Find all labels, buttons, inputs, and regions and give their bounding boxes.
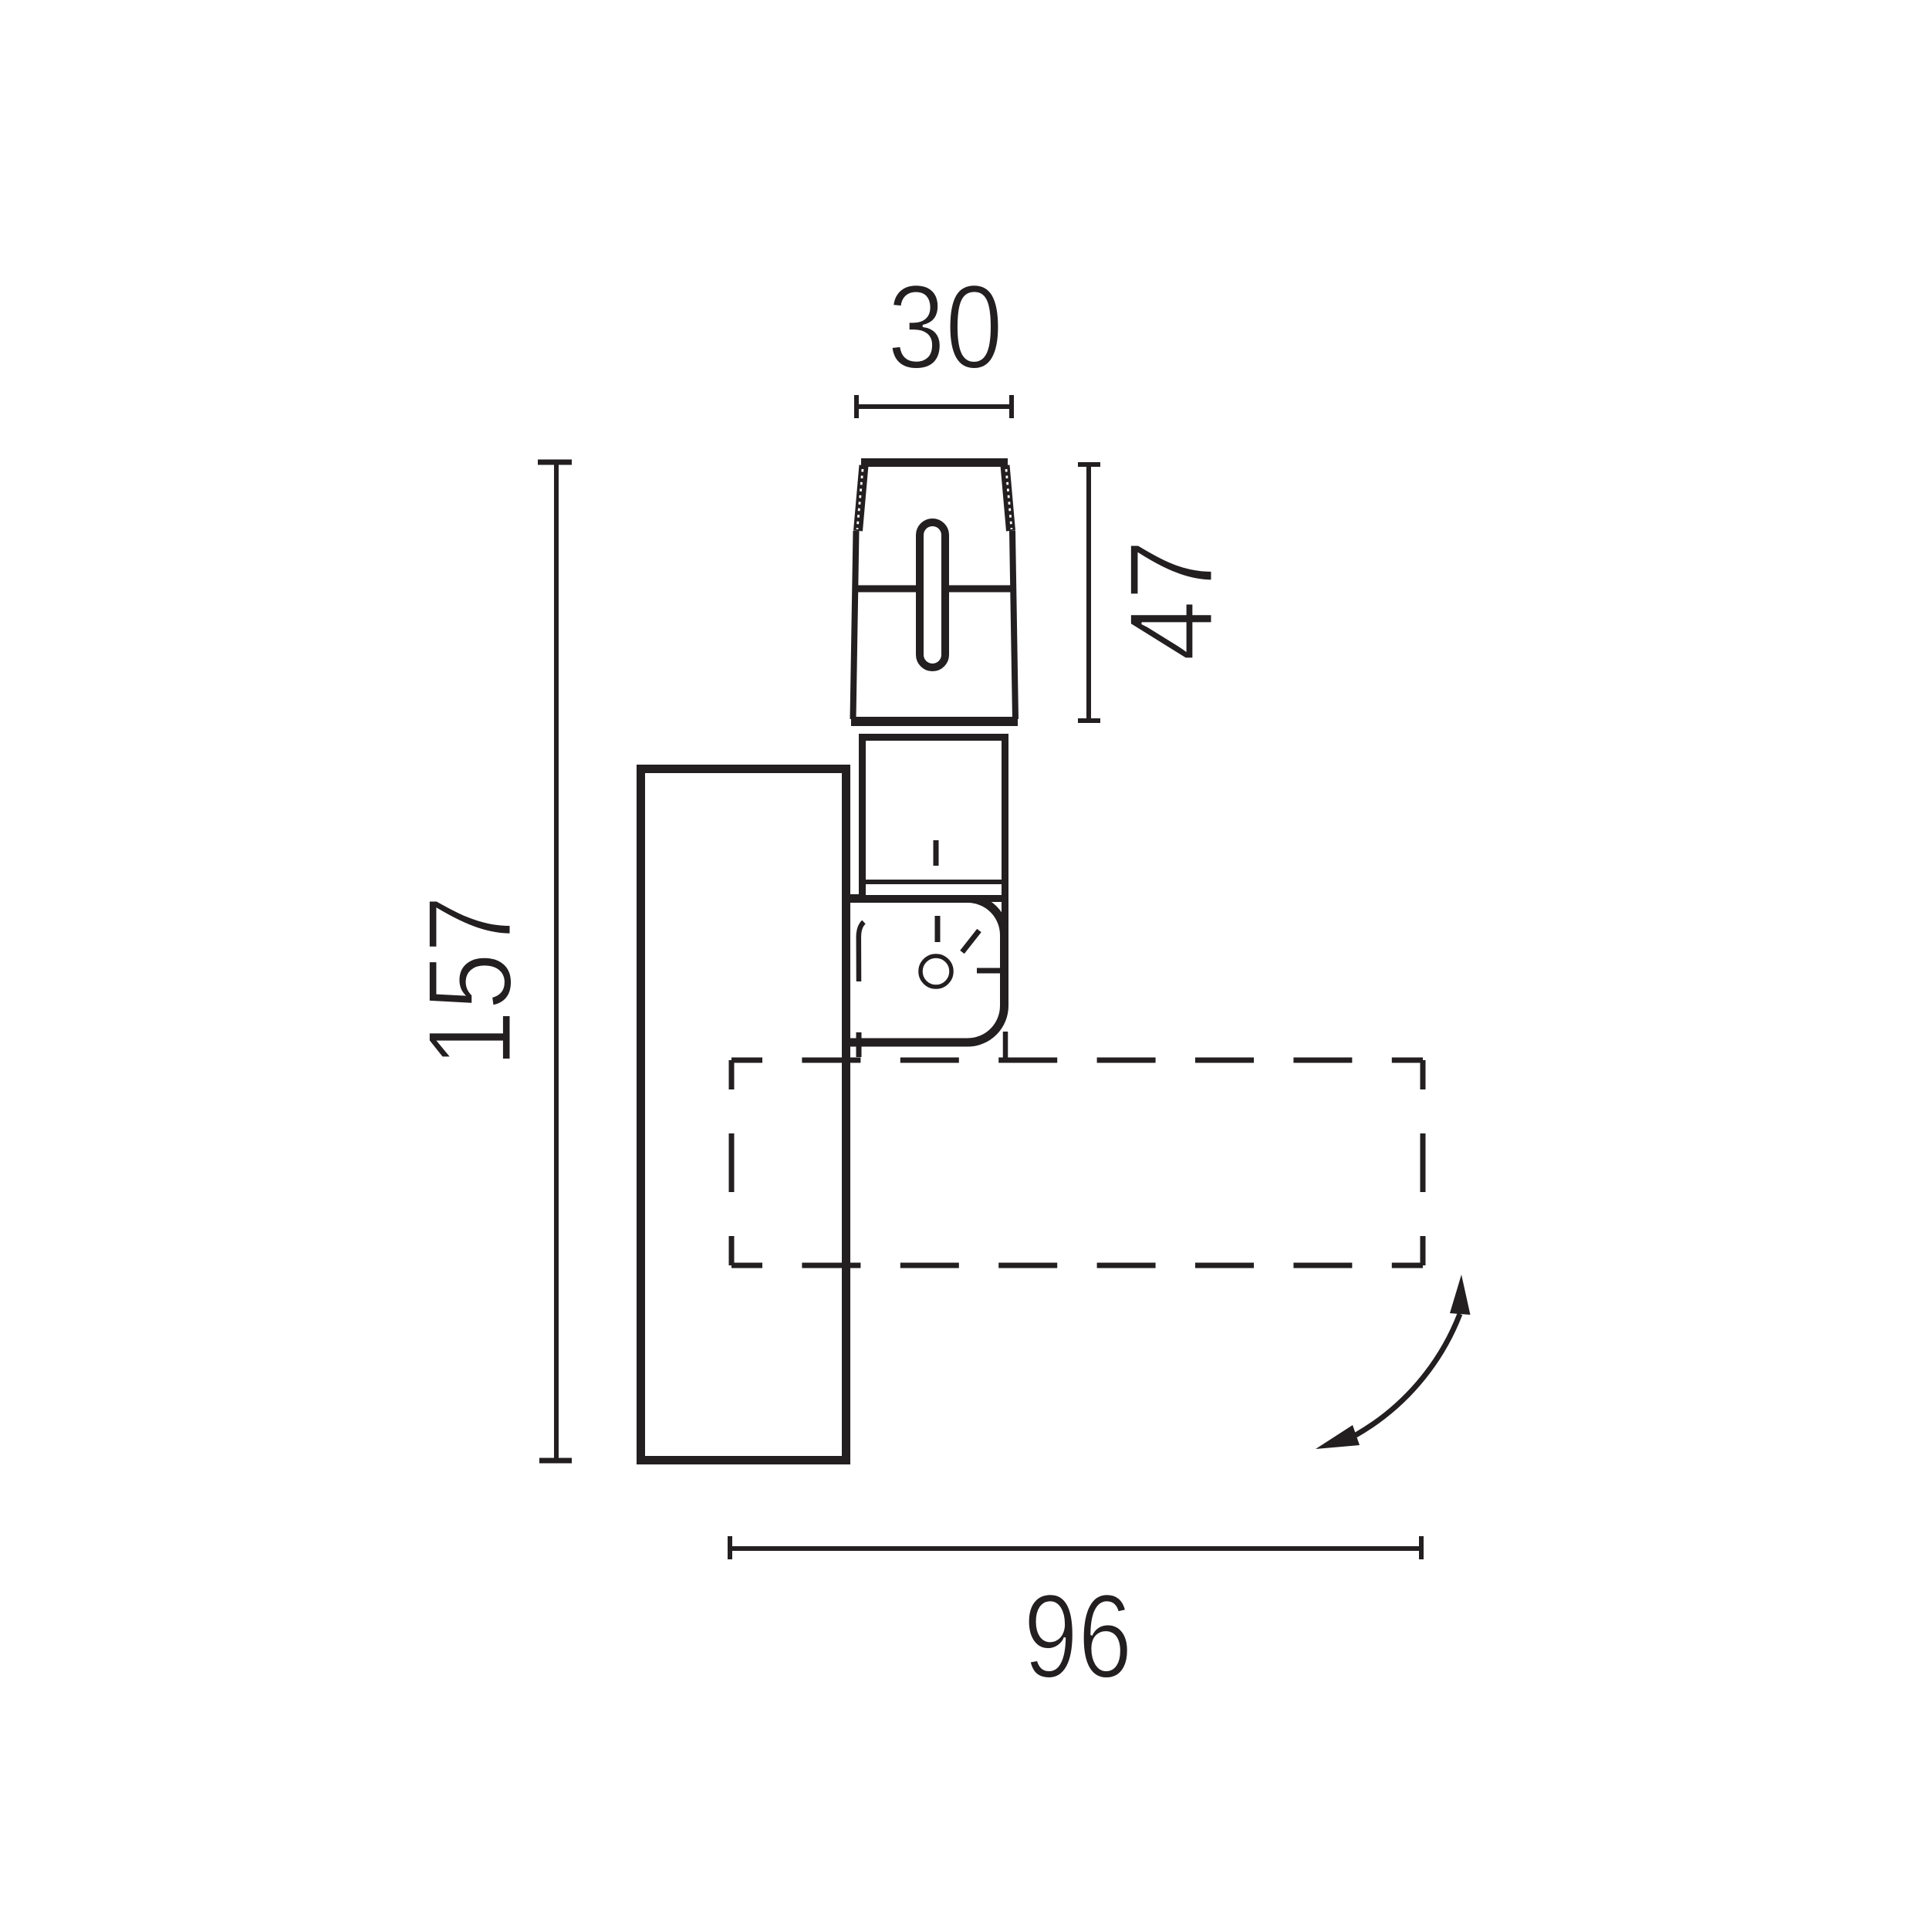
svg-text:47: 47 <box>1104 539 1238 661</box>
svg-text:157: 157 <box>403 896 536 1068</box>
svg-text:30: 30 <box>887 260 1003 393</box>
svg-text:96: 96 <box>1024 1569 1133 1703</box>
